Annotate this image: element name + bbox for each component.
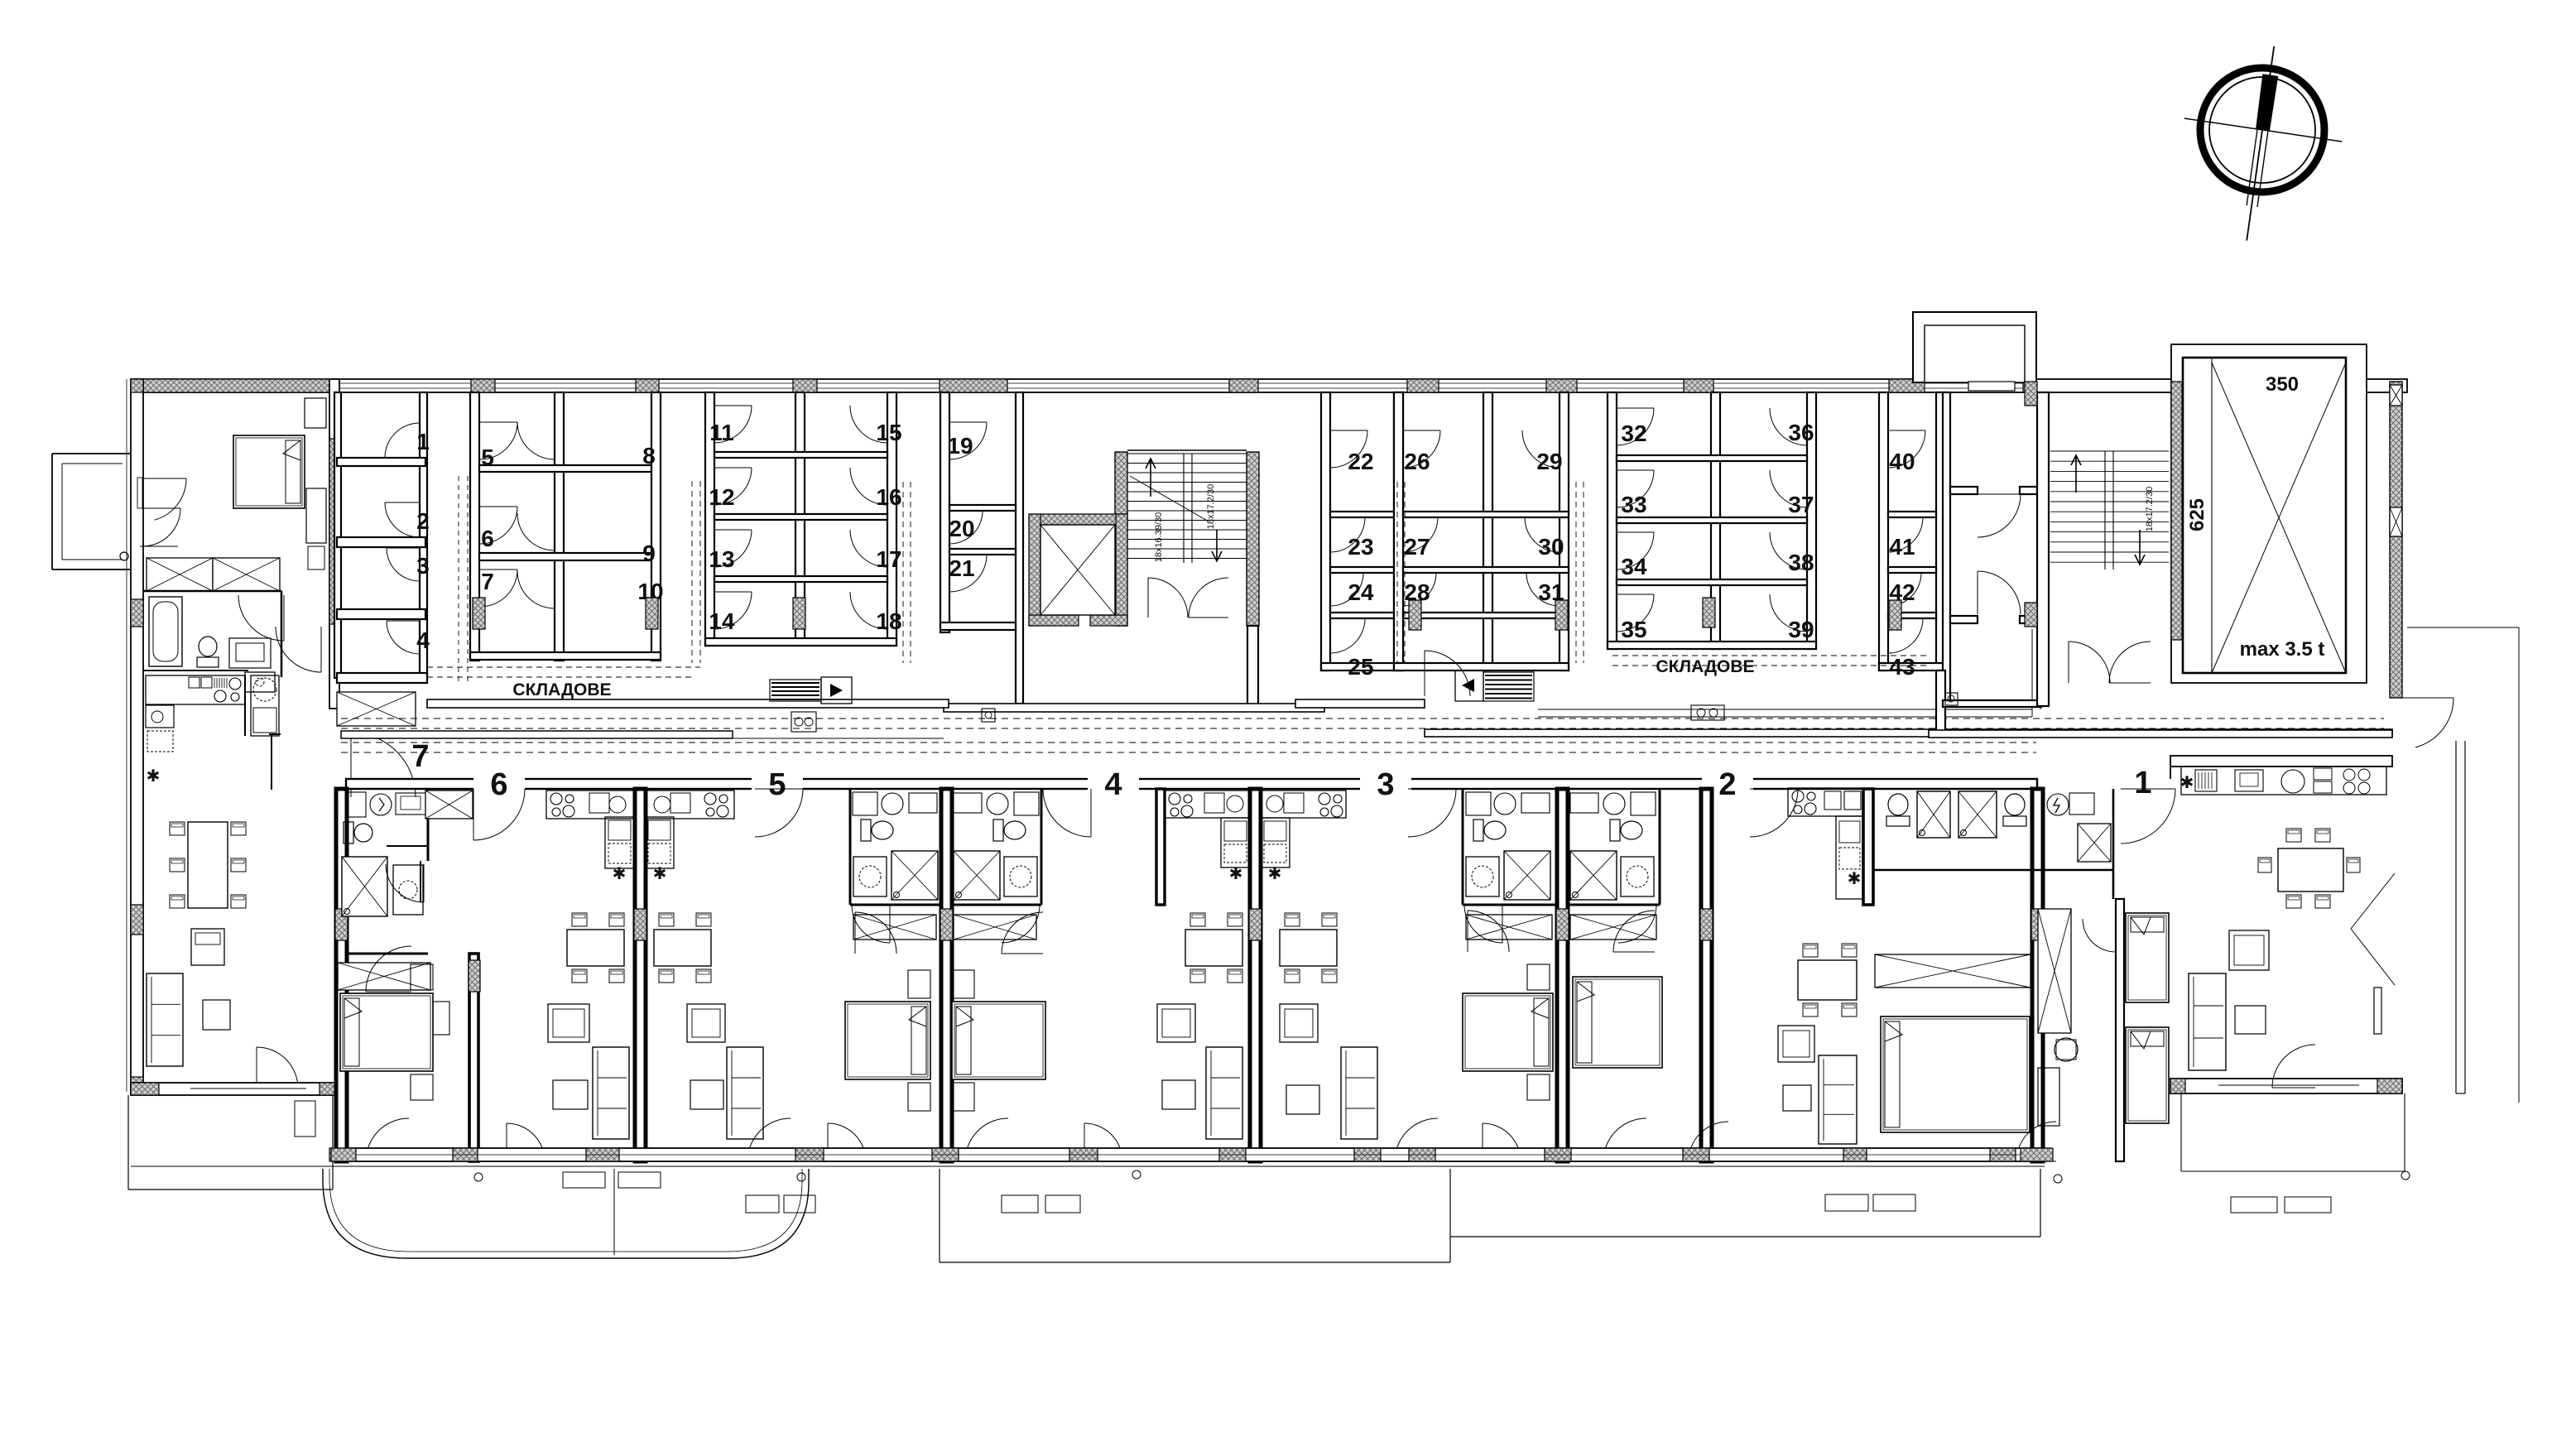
svg-text:27: 27 (1404, 534, 1430, 560)
svg-text:6: 6 (481, 526, 494, 551)
svg-text:16: 16 (876, 484, 901, 510)
svg-text:✱: ✱ (147, 767, 161, 786)
svg-text:35: 35 (1621, 617, 1646, 642)
svg-text:4: 4 (416, 627, 430, 653)
svg-text:40: 40 (1889, 449, 1915, 474)
svg-text:36: 36 (1788, 420, 1814, 445)
svg-text:12: 12 (709, 484, 734, 510)
svg-text:✱: ✱ (1229, 865, 1243, 883)
svg-text:15: 15 (876, 420, 901, 445)
svg-text:4: 4 (1104, 767, 1122, 802)
svg-text:8: 8 (642, 443, 656, 469)
svg-text:7: 7 (481, 569, 494, 594)
svg-text:СКЛАДОВЕ: СКЛАДОВЕ (1656, 657, 1754, 676)
svg-text:1: 1 (2134, 766, 2151, 800)
svg-text:max 3.5 t: max 3.5 t (2240, 638, 2325, 661)
svg-text:26: 26 (1404, 449, 1430, 474)
svg-text:23: 23 (1348, 534, 1373, 560)
svg-text:7: 7 (411, 739, 429, 774)
svg-text:9: 9 (642, 541, 656, 566)
svg-text:✱: ✱ (2180, 774, 2194, 792)
svg-text:20: 20 (949, 516, 974, 541)
svg-text:✱: ✱ (1268, 865, 1282, 883)
svg-text:22: 22 (1348, 449, 1373, 474)
svg-text:19: 19 (947, 433, 973, 459)
svg-text:33: 33 (1621, 492, 1646, 517)
svg-text:✱: ✱ (1848, 870, 1862, 888)
svg-text:30: 30 (1538, 534, 1564, 560)
svg-text:350: 350 (2266, 373, 2299, 396)
svg-text:14: 14 (709, 608, 735, 634)
svg-text:2: 2 (416, 508, 430, 534)
svg-text:17: 17 (876, 546, 901, 572)
svg-text:43: 43 (1889, 654, 1915, 680)
svg-text:5: 5 (768, 767, 786, 802)
svg-text:✱: ✱ (613, 865, 627, 883)
svg-text:3: 3 (1377, 767, 1394, 802)
svg-text:5: 5 (481, 445, 494, 470)
svg-text:32: 32 (1621, 421, 1646, 446)
svg-text:18x17.2/30: 18x17.2/30 (1206, 484, 1216, 529)
svg-text:625: 625 (2186, 498, 2208, 531)
svg-text:24: 24 (1348, 579, 1374, 605)
svg-text:1: 1 (416, 429, 430, 454)
svg-text:34: 34 (1621, 554, 1647, 579)
svg-text:СКЛАДОВЕ: СКЛАДОВЕ (512, 680, 611, 699)
svg-text:37: 37 (1788, 492, 1814, 517)
svg-text:3: 3 (416, 553, 430, 579)
svg-text:39: 39 (1788, 617, 1814, 642)
svg-text:13: 13 (709, 546, 734, 572)
svg-text:41: 41 (1889, 534, 1915, 560)
svg-text:2: 2 (1718, 767, 1736, 802)
svg-text:38: 38 (1788, 550, 1814, 575)
svg-text:29: 29 (1536, 449, 1562, 474)
svg-text:18: 18 (876, 608, 901, 634)
svg-text:18x17.2/30: 18x17.2/30 (2145, 487, 2155, 531)
svg-text:✱: ✱ (653, 865, 667, 883)
svg-text:18x16.39/30: 18x16.39/30 (1154, 512, 1164, 563)
svg-text:6: 6 (490, 767, 507, 802)
svg-text:21: 21 (949, 555, 974, 581)
svg-text:11: 11 (709, 420, 734, 445)
svg-text:25: 25 (1348, 654, 1373, 680)
